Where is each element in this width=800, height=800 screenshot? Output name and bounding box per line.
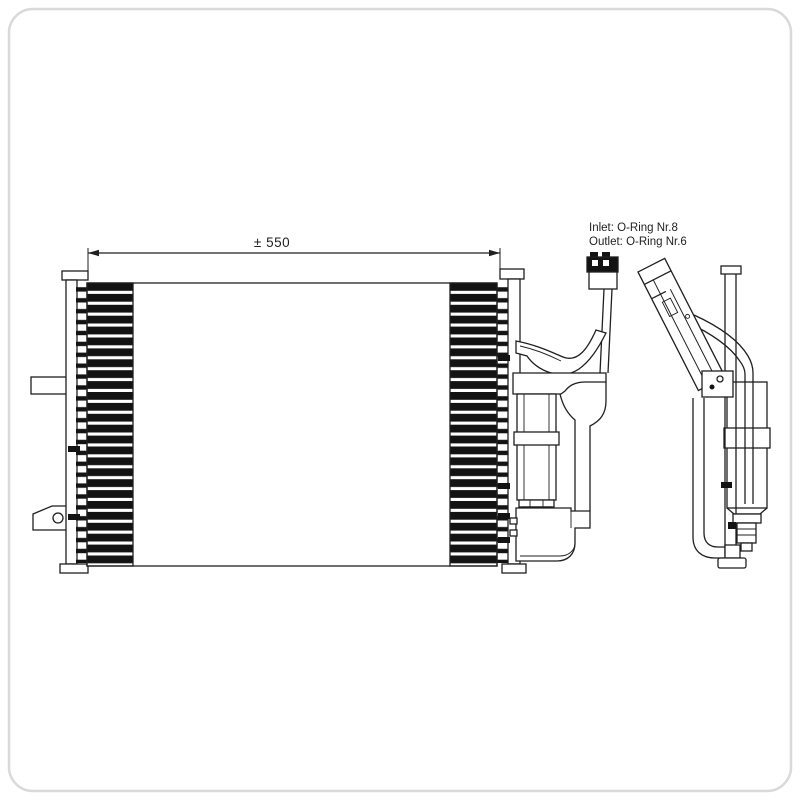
core-outline bbox=[87, 283, 497, 566]
pipe-clamp bbox=[721, 482, 732, 488]
condenser-core bbox=[76, 283, 508, 566]
front-view: ± 550 ± 383 bbox=[31, 235, 526, 573]
inlet-pipe bbox=[600, 289, 612, 373]
drier-collar bbox=[514, 432, 559, 445]
receiver-drier-front bbox=[510, 252, 618, 561]
left-mounting-bracket-lower bbox=[33, 506, 67, 530]
side-view bbox=[638, 258, 770, 568]
inlet-pipe-bracket bbox=[516, 330, 606, 374]
drier-outlet-band bbox=[560, 382, 606, 511]
right-tank-tab-4 bbox=[498, 537, 510, 543]
fitting-note: Inlet: O-Ring Nr.8 Outlet: O-Ring Nr.6 bbox=[589, 222, 687, 248]
drier-lower-bracket bbox=[510, 508, 590, 561]
side-drier-bottle bbox=[724, 382, 770, 514]
bracket-hole-filled bbox=[710, 385, 715, 390]
dimension-arrow-right bbox=[489, 250, 500, 256]
right-tank-foot bbox=[502, 564, 526, 573]
right-tank-tab-1 bbox=[498, 355, 510, 361]
width-dimension: ± 550 bbox=[88, 235, 500, 271]
right-fin-comb bbox=[497, 286, 508, 563]
inlet-note: Inlet: O-Ring Nr.8 bbox=[589, 222, 678, 234]
drier-bottle bbox=[514, 394, 559, 511]
side-bracket-end-plate bbox=[702, 371, 733, 397]
drier-mounting-plate bbox=[513, 373, 606, 394]
left-tank-foot bbox=[60, 564, 88, 573]
drawing-canvas: ± 550 ± 383 bbox=[0, 0, 800, 800]
width-dimension-label: ± 550 bbox=[254, 235, 290, 250]
core-right-tube-band bbox=[450, 283, 497, 566]
core-left-tube-band bbox=[87, 283, 133, 566]
right-tank-tab-3 bbox=[498, 513, 510, 519]
right-tank-top-cap bbox=[500, 269, 524, 279]
left-tank-top-cap bbox=[62, 271, 88, 280]
side-drier-collar bbox=[724, 428, 770, 448]
dimension-arrow-left bbox=[88, 250, 99, 256]
left-tank-body bbox=[66, 280, 77, 564]
right-tank-tab-2 bbox=[498, 483, 510, 489]
outlet-note: Outlet: O-Ring Nr.6 bbox=[589, 236, 687, 248]
condenser-technical-drawing: ± 550 ± 383 bbox=[0, 0, 800, 800]
left-mounting-bracket-upper bbox=[31, 377, 67, 394]
left-fin-comb bbox=[76, 286, 87, 563]
inlet-connector-block bbox=[587, 252, 618, 289]
